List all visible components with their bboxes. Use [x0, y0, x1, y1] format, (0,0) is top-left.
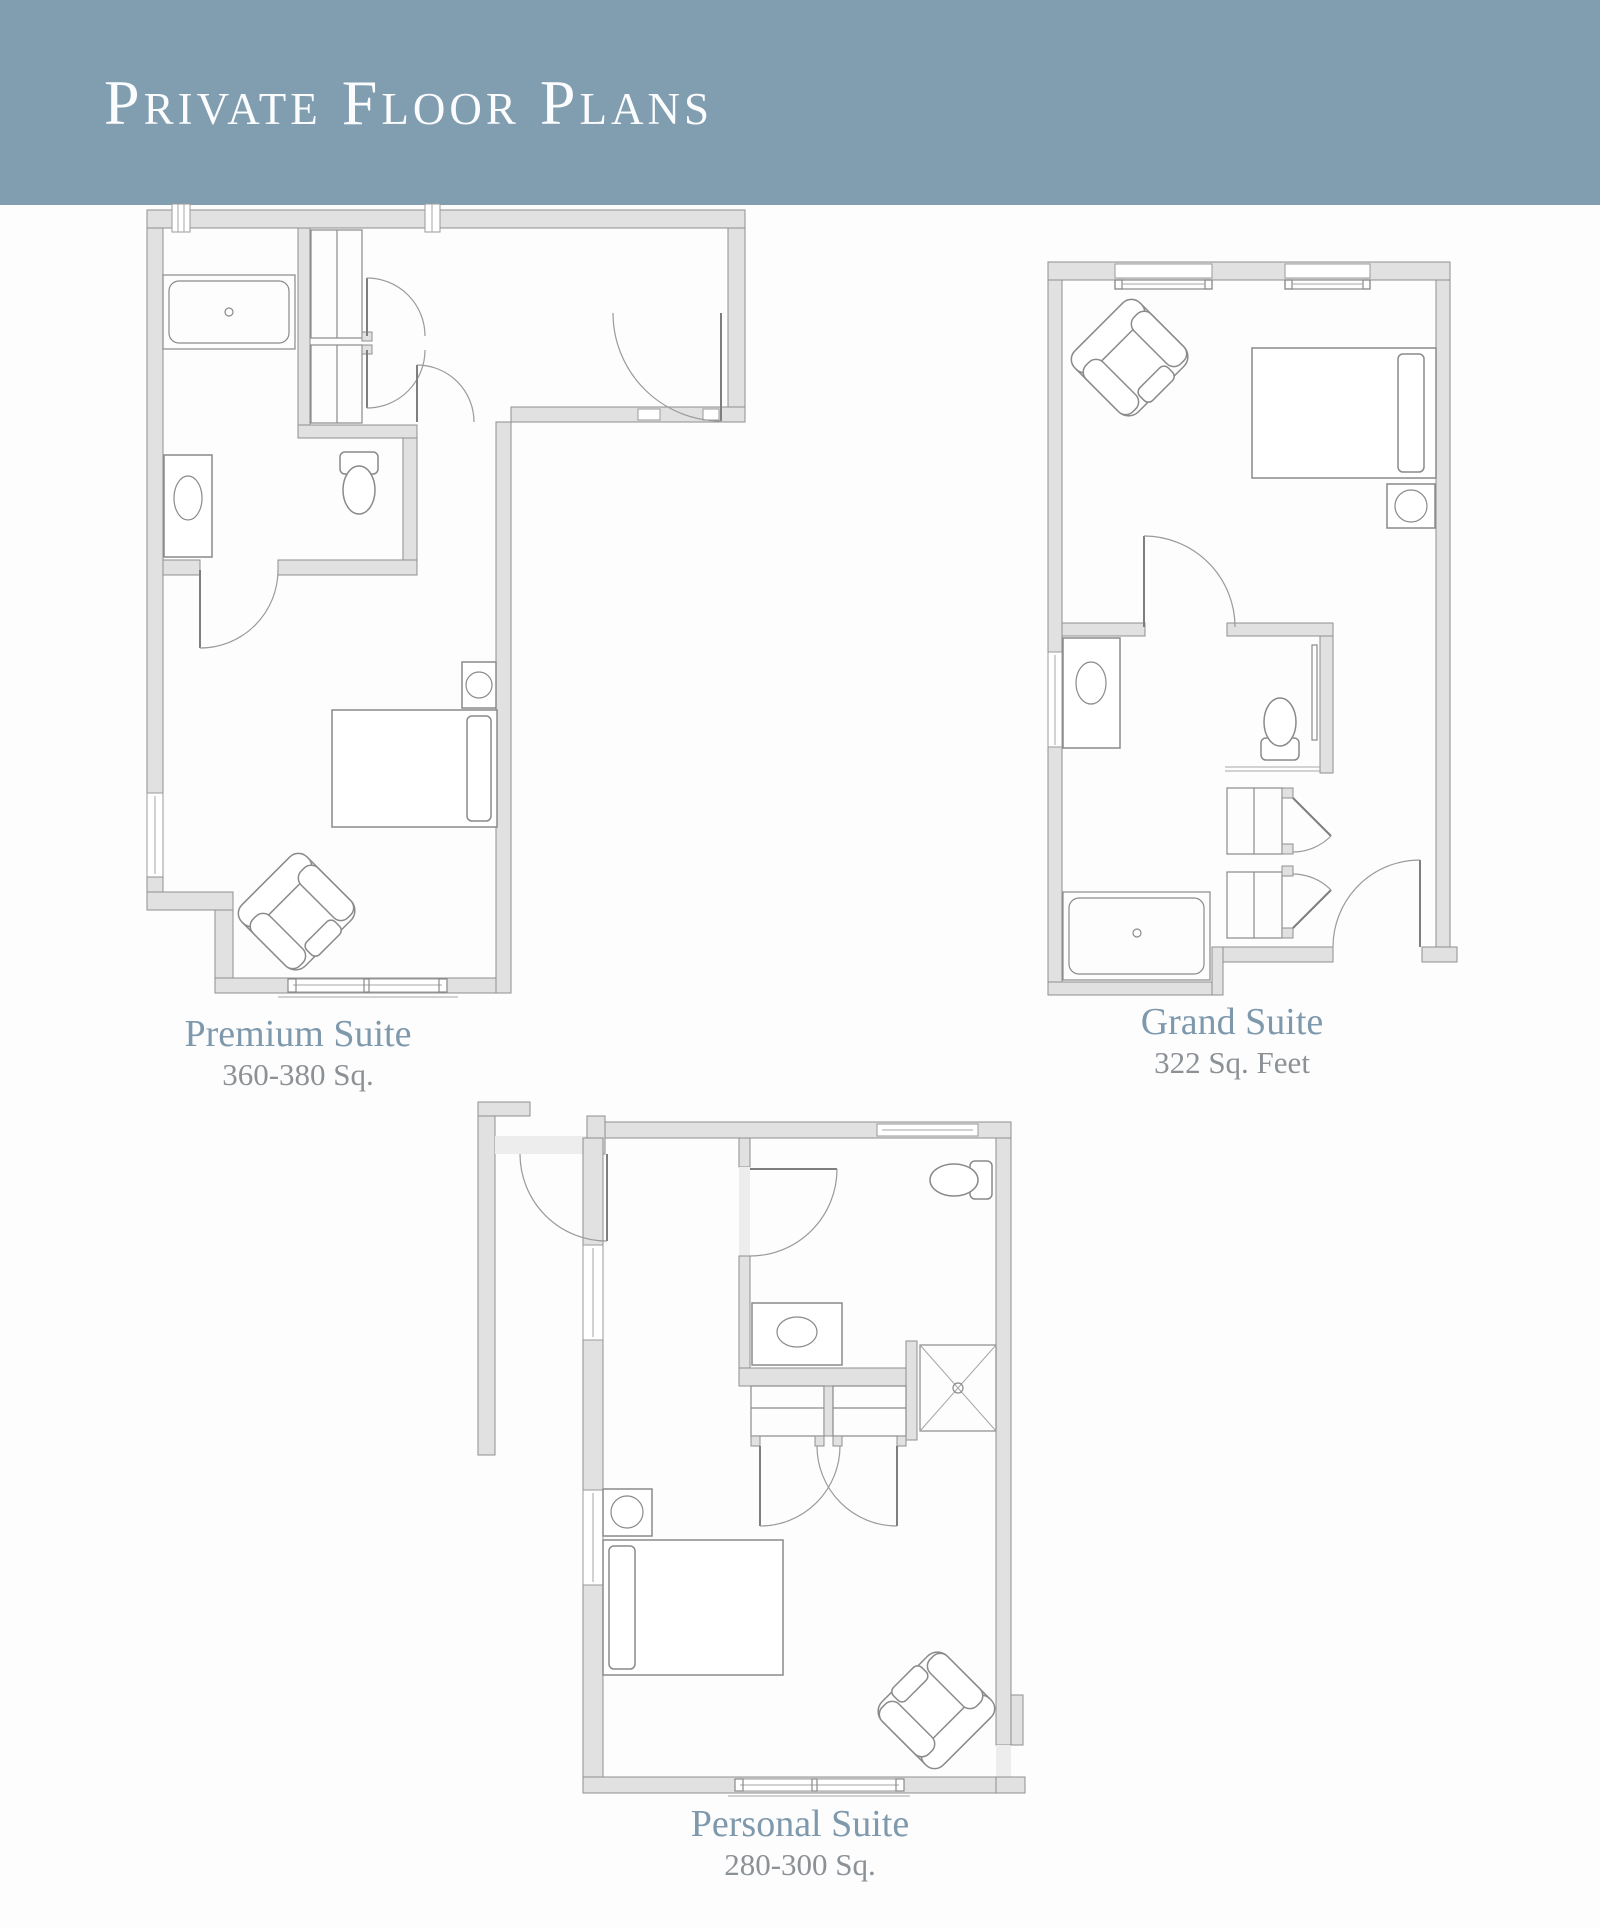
vanity-sink [1063, 638, 1120, 748]
closet [1227, 788, 1331, 938]
plan-area: 360-380 Sq. [118, 1056, 478, 1094]
page-title: Private Floor Plans [104, 66, 713, 140]
toilet-icon [930, 1161, 992, 1199]
toilet-icon [340, 452, 378, 514]
personal-suite-floorplan [470, 1100, 1040, 1800]
nightstand [603, 1489, 652, 1536]
plan-area: 322 Sq. Feet [1040, 1044, 1424, 1082]
grab-bar [1312, 645, 1317, 740]
premium-suite-floorplan [118, 200, 760, 1000]
grand-suite-floorplan [1040, 255, 1470, 1000]
bed [332, 710, 497, 827]
personal-suite-plan: Personal Suite 280-300 Sq. [470, 1100, 1040, 1884]
personal-suite-caption: Personal Suite 280-300 Sq. [515, 1802, 1085, 1884]
premium-suite-caption: Premium Suite 360-380 Sq. [118, 1012, 478, 1094]
door-bath-to-bedroom [200, 570, 278, 648]
door-bedroom-to-bath [1144, 536, 1235, 627]
grand-suite-caption: Grand Suite 322 Sq. Feet [1040, 1000, 1424, 1082]
nightstand [1387, 484, 1435, 528]
window [1285, 264, 1370, 289]
window [1115, 264, 1212, 289]
armchair-icon [871, 1645, 1000, 1774]
plan-area: 280-300 Sq. [515, 1846, 1085, 1884]
closet [751, 1386, 906, 1526]
grand-suite-plan: Grand Suite 322 Sq. Feet [1040, 255, 1470, 1082]
entry-door [1333, 860, 1420, 947]
bed [603, 1540, 783, 1675]
closet [311, 230, 425, 423]
bathtub [163, 275, 295, 349]
plan-name: Personal Suite [515, 1802, 1085, 1846]
window [278, 979, 458, 997]
nightstand [462, 662, 496, 708]
vanity-sink [752, 1303, 842, 1365]
premium-suite-plan: Premium Suite 360-380 Sq. [118, 200, 760, 1094]
vanity-sink [164, 455, 212, 557]
armchair-icon [233, 848, 362, 977]
bathtub [1063, 892, 1210, 980]
window [877, 1124, 978, 1136]
premium-walls [147, 204, 745, 997]
plan-name: Grand Suite [1040, 1000, 1424, 1044]
armchair-icon [1066, 294, 1195, 423]
bathroom-door [750, 1169, 837, 1256]
plan-name: Premium Suite [118, 1012, 478, 1056]
door-hall-to-bath [417, 365, 474, 422]
header-banner: Private Floor Plans [0, 0, 1600, 205]
bed [1252, 348, 1436, 478]
shower [920, 1345, 996, 1431]
entry-door [613, 313, 721, 421]
toilet-icon [1261, 698, 1299, 760]
